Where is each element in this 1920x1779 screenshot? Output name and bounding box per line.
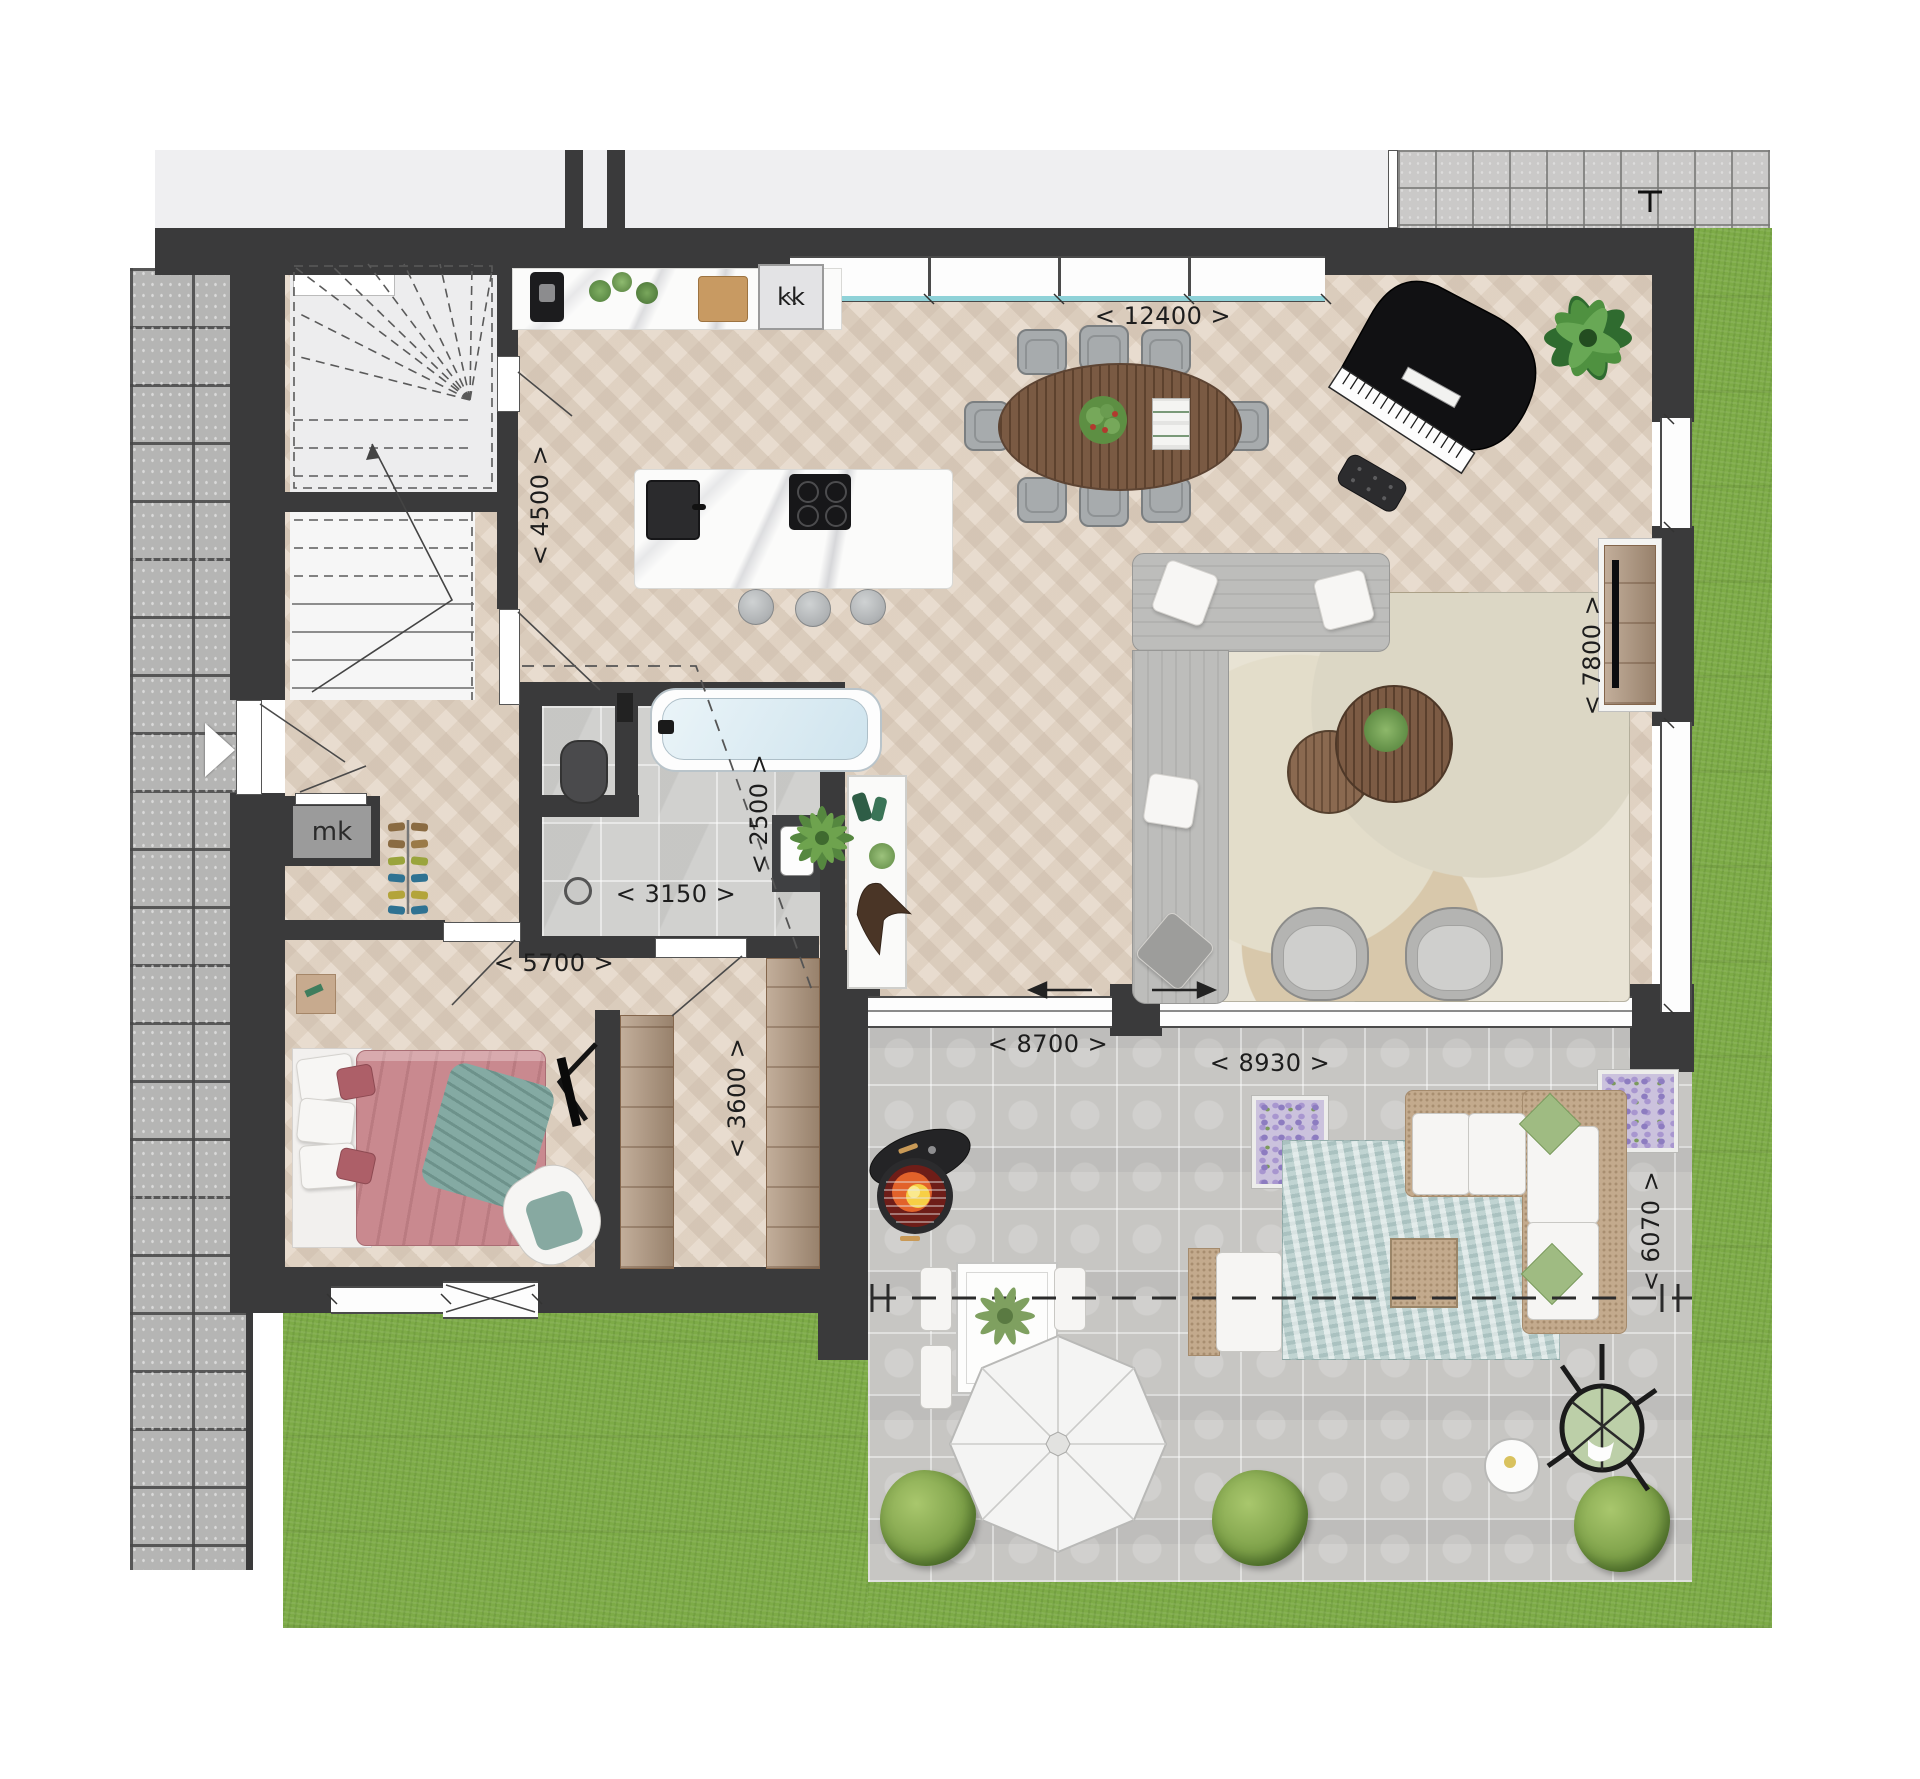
outdoor-cushion [1468,1113,1526,1195]
meter-closet-door [295,793,367,805]
window-east-lower [1660,722,1692,1012]
outdoor-coffee-table [1390,1238,1458,1308]
fridge-unit: kk [758,264,824,330]
outdoor-dining-table [956,1262,1058,1394]
coffee-table-plant [1364,708,1408,752]
dim-label-7800: < 7800 > [1579,585,1605,725]
cooktop [789,474,851,530]
outdoor-chair [1054,1345,1086,1409]
wardrobe-left [620,1015,674,1269]
shower-drain [564,877,592,905]
front-door [236,700,262,795]
wall-west-upper [230,228,285,700]
meter-closet: mk [293,806,371,858]
tv-screen [1612,560,1619,688]
nightstand [296,974,336,1014]
dim-label-8700: < 8700 > [978,1031,1118,1057]
burner [825,505,847,527]
table-inner-line [966,1272,1048,1384]
outdoor-chair [920,1267,952,1331]
garden-grass-southwest [283,1313,868,1628]
burner [825,481,847,503]
garden-grass-east [1692,228,1772,1628]
bar-stool [738,589,774,625]
window-glass-line [790,296,1325,301]
window-mullion [1058,258,1061,300]
nightstand-book [304,984,323,998]
side-table [1484,1438,1540,1494]
decor-succulent [869,843,895,869]
decor-bottle [851,792,873,823]
window-mullion [1188,258,1191,300]
staircase-upper-flight [290,262,497,492]
dim-label-5700: < 5700 > [484,950,624,976]
outdoor-chair [1054,1267,1086,1331]
toilet-flush-panel [617,693,633,722]
dining-chair [1017,477,1067,523]
bed-accent-pillow [335,1063,376,1101]
dim-label-3150: < 3150 > [606,881,746,907]
dim-label-4500: < 4500 > [527,435,553,575]
burner [797,481,819,503]
cutting-board [698,276,748,322]
side-path-cobblestones [1398,150,1770,228]
dim-label-6070: < 6070 > [1638,1161,1664,1301]
outdoor-bench-cushion [1216,1252,1282,1352]
dining-table [998,363,1242,491]
wall-bathroom-west [519,682,542,958]
bedroom-window [331,1286,445,1314]
coffee-machine-detail [539,284,555,302]
sideboard [847,775,907,989]
garden-grass-south [868,1582,1692,1628]
sink-faucet [692,504,706,510]
meter-closet-label: mk [312,817,352,847]
bath-faucet [658,720,674,734]
window-north [790,256,1325,302]
window-mullion [928,258,931,300]
island-sink [646,480,700,540]
washbasin [780,826,814,876]
side-table-cup [1504,1456,1516,1468]
wall-stair-separator [285,492,500,512]
counter-plant [636,282,658,304]
side-gate [1388,150,1398,228]
floor-plan: mk kk [0,0,1920,1779]
wall-east-upper [1652,228,1694,422]
dim-label-3600: < 3600 > [724,1028,750,1168]
dim-label-2500: < 2500 > [746,744,772,884]
decor-bottle [870,796,887,822]
outdoor-cushion [1412,1113,1470,1195]
bedroom-slider [443,1281,538,1319]
counter-plant [589,280,611,302]
coffee-machine [530,272,564,322]
wall-bedroom-south [230,1267,868,1313]
wall-west-lower [230,793,285,1313]
dim-label-12400: < 12400 > [1093,303,1233,329]
bar-stool [850,589,886,625]
counter-plant [612,272,632,292]
outdoor-chair [920,1345,952,1409]
stair-hall-door [499,609,520,705]
neighbor-area [155,150,1388,228]
staircase-lower-flight [290,512,475,700]
wall-closet-west [595,1010,620,1313]
bedroom-door [443,922,521,942]
fridge-label: kk [777,283,805,311]
bar-stool [795,591,831,627]
garden-boundary-wall [246,1313,253,1570]
wall-bedroom-north [285,920,445,940]
sliding-door-west-panel [868,996,1112,1028]
bed-pillow [296,1097,356,1147]
stair-top-door [497,356,520,412]
bedroom-chair-cloth [523,1188,585,1252]
window-east-upper [1660,418,1692,528]
slider-track-line [1160,1010,1632,1012]
table-books [1152,398,1190,450]
dim-label-8930: < 8930 > [1200,1050,1340,1076]
armchair [1405,907,1503,1001]
wardrobe-right [766,958,820,1269]
slider-track-line [868,1010,1112,1012]
toilet [560,740,608,804]
sofa-pillow [1142,772,1199,829]
burner [797,505,819,527]
entry-arrow [205,723,235,777]
armchair [1271,907,1369,1001]
dining-chair [1017,329,1067,375]
bathroom-door [655,938,747,958]
